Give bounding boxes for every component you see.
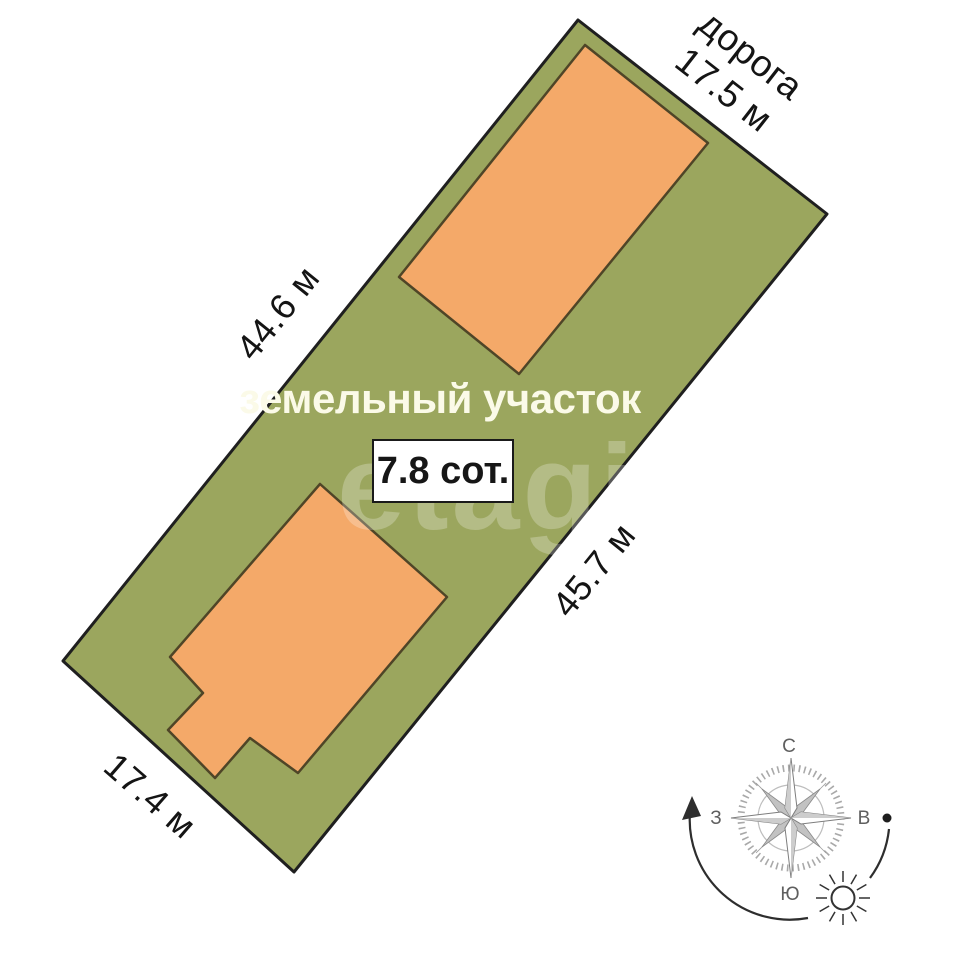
- compass-north-label: С: [782, 736, 796, 758]
- compass-east-label: В: [858, 808, 871, 830]
- plot-title: земельный участок: [239, 375, 640, 423]
- area-value: 7.8 сот.: [377, 450, 510, 493]
- compass-west-label: З: [710, 808, 721, 830]
- area-badge: 7.8 сот.: [372, 439, 514, 503]
- compass-south-label: Ю: [780, 884, 799, 906]
- compass-rose-icon: [731, 758, 851, 878]
- arc-start-dot: [883, 814, 892, 823]
- land-plot-diagram: etagi дорога 17.5 м 44.6 м 45.7 м 17.4 м…: [0, 0, 960, 960]
- arrowhead-icon: [682, 796, 701, 820]
- sun-icon: [816, 871, 870, 925]
